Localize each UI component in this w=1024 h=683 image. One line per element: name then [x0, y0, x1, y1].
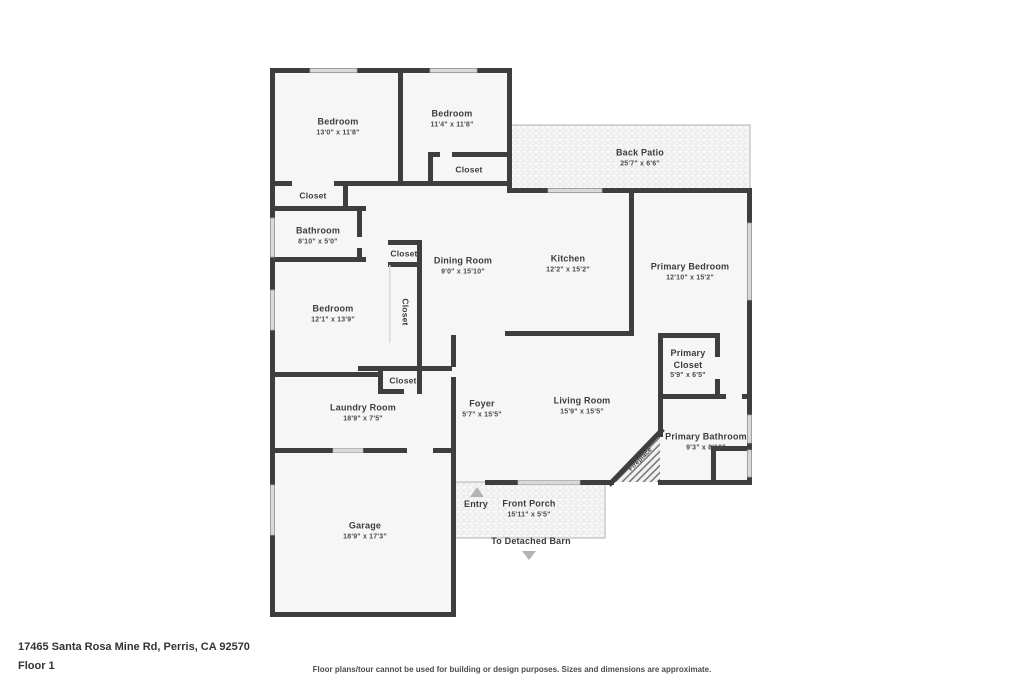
disclaimer-text: Floor plans/tour cannot be used for buil… — [0, 665, 1024, 674]
property-address: 17465 Santa Rosa Mine Rd, Perris, CA 925… — [18, 641, 250, 653]
floor-plan-page: Bedroom 13'0" x 11'8" Bedroom 11'4" x 11… — [0, 0, 1024, 683]
back-patio-area — [510, 125, 750, 190]
barn-arrow-icon — [522, 551, 536, 560]
floor-plan-canvas — [0, 0, 1024, 683]
